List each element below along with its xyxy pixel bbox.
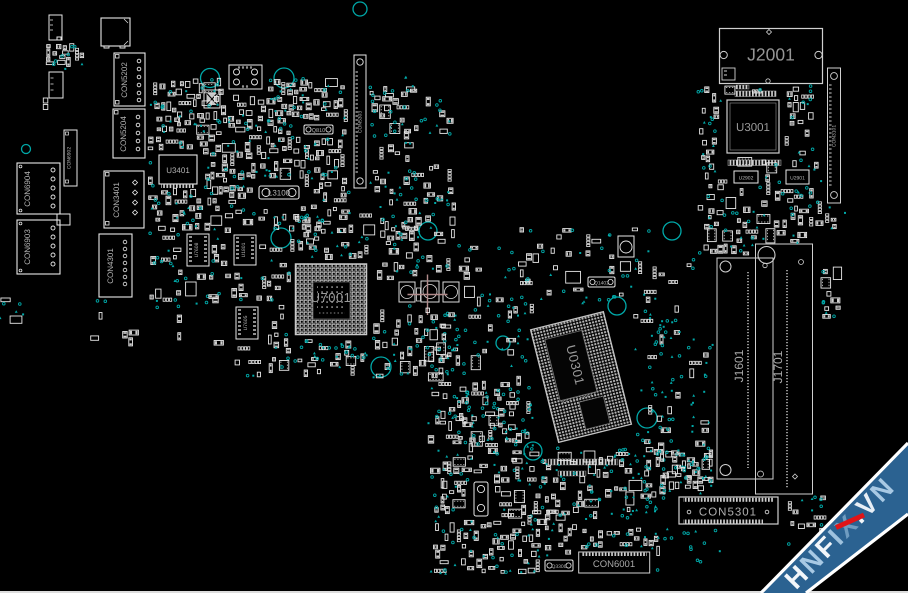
svg-text:J1601: J1601 [732, 349, 746, 382]
svg-text:Q810: Q810 [312, 128, 325, 134]
svg-text:U2901: U2901 [790, 176, 805, 182]
svg-text:CON6902: CON6902 [67, 147, 73, 169]
svg-text:CON3101: CON3101 [832, 125, 838, 147]
svg-text:CON6001: CON6001 [593, 559, 635, 570]
svg-text:U7001: U7001 [311, 290, 352, 305]
svg-text:U1801: U1801 [241, 242, 247, 257]
svg-text:CON5301: CON5301 [699, 507, 757, 519]
svg-text:CON3401: CON3401 [112, 182, 121, 218]
svg-text:Q3300: Q3300 [551, 564, 566, 570]
svg-text:J1701: J1701 [771, 350, 785, 383]
svg-text:CON6903: CON6903 [23, 229, 32, 265]
svg-text:L3100: L3100 [268, 189, 291, 198]
svg-text:CON5204: CON5204 [119, 116, 128, 152]
svg-text:CON5202: CON5202 [120, 62, 129, 98]
svg-text:U3001: U3001 [736, 122, 770, 134]
svg-text:U2902: U2902 [739, 176, 754, 182]
svg-text:J2001: J2001 [747, 45, 795, 65]
svg-text:U7605: U7605 [243, 315, 249, 330]
svg-text:CON5303: CON5303 [358, 111, 364, 133]
svg-text:Q1402: Q1402 [594, 281, 609, 287]
svg-text:U7608: U7608 [194, 242, 200, 257]
svg-text:U3401: U3401 [166, 166, 190, 175]
svg-text:CON4301: CON4301 [106, 248, 115, 284]
svg-text:CON6904: CON6904 [23, 171, 32, 207]
